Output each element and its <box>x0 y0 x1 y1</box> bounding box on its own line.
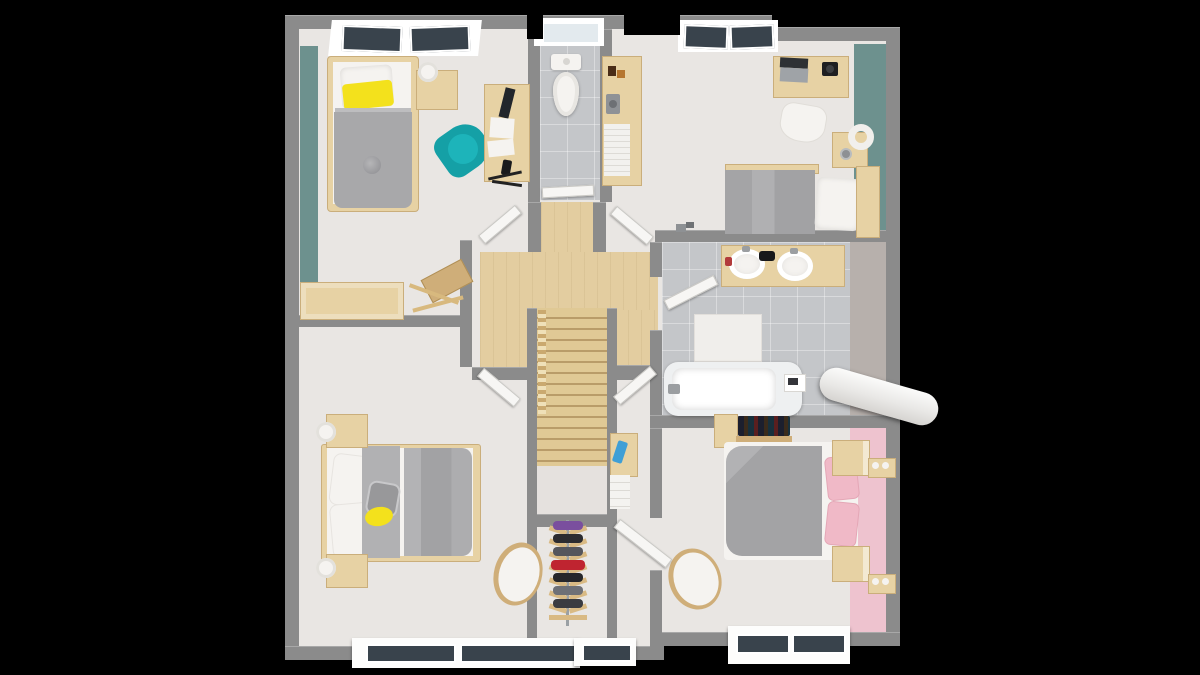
alarm-clock <box>840 148 852 160</box>
bathroom-wall-left-b <box>650 330 662 428</box>
pink-pillow-2 <box>824 500 860 547</box>
bedroom-br-door <box>614 519 673 568</box>
exterior-wall-right <box>886 27 900 646</box>
book-row <box>738 416 790 436</box>
shoes-dark-2 <box>553 599 583 608</box>
bedroom-br-window-1 <box>736 634 790 654</box>
lamp-top <box>316 422 336 442</box>
bed-duvet <box>725 170 815 234</box>
nightstand-top <box>832 440 870 476</box>
faucet-left <box>742 246 750 252</box>
table-lamp <box>418 62 438 82</box>
wc-window <box>542 22 600 44</box>
shoes-gray <box>553 547 583 556</box>
bath-mat <box>694 314 762 362</box>
vestibule-wall-left <box>528 202 541 252</box>
bed-pillow <box>814 177 862 232</box>
stairs-landing <box>537 466 607 514</box>
candle-1 <box>872 462 879 469</box>
white-book-stack <box>604 124 630 176</box>
toilet-flush-button <box>563 58 570 65</box>
bed-duvet <box>404 448 472 556</box>
wc-door <box>542 185 595 199</box>
bathroom-wall-left-a <box>650 242 662 277</box>
floor-gadget-2 <box>686 222 694 228</box>
faucet-right <box>790 248 798 254</box>
sink-right <box>777 251 813 281</box>
stairs-railing <box>538 310 546 414</box>
shoe-rack-base <box>549 615 587 620</box>
bedroom-bl-window-2 <box>460 644 576 663</box>
desk-papers-1 <box>489 117 514 139</box>
black-tray <box>759 251 775 261</box>
teal-armchair-seat <box>448 134 478 164</box>
camera-on-desk-lens <box>826 65 834 73</box>
shoes-dark <box>553 573 583 582</box>
bedroom-bl-window-1 <box>366 644 456 663</box>
candle-2 <box>882 462 889 469</box>
roof-notch-2 <box>624 15 680 35</box>
figurine-orange <box>617 70 625 78</box>
bedroom1-window-1 <box>342 25 403 53</box>
hallway-wood-left <box>480 310 528 368</box>
bathtub-inner <box>672 368 776 410</box>
bathtub-tray-item <box>788 378 798 385</box>
wc-vestibule-wood <box>541 202 593 252</box>
bed-headboard <box>856 166 880 238</box>
lamp-bottom <box>316 558 336 578</box>
desk-papers-2 <box>487 139 515 158</box>
shoes-red <box>551 560 585 570</box>
yellow-pillow <box>342 79 394 110</box>
camera-lens <box>609 100 617 108</box>
vestibule-wall-right <box>593 202 606 252</box>
hallway-wood-floor <box>480 252 658 310</box>
bathroom-door <box>664 275 719 310</box>
bedroom-tr-door <box>610 206 654 245</box>
bedroom1-window-2 <box>410 25 471 53</box>
exterior-wall-left <box>285 15 299 660</box>
storage-chest-upper <box>300 282 404 320</box>
nightstand-bottom <box>832 546 870 582</box>
bathtub-tap <box>668 384 680 394</box>
ring-lamp <box>848 124 874 150</box>
bedroom3-wall-left-a <box>650 428 662 518</box>
floor-gadget <box>676 224 686 232</box>
stairs-treads <box>537 308 607 466</box>
laptop-keyboard <box>780 67 809 82</box>
figurine-dark <box>608 66 616 76</box>
candle-4 <box>882 578 889 585</box>
dressing-window <box>582 644 632 662</box>
gray-ball-cushion <box>363 156 381 174</box>
roof-notch-1 <box>527 15 543 39</box>
bedroom2-window-2 <box>730 24 775 50</box>
soap-red <box>725 257 732 266</box>
bedroom2-window-1 <box>684 24 729 50</box>
shoes-black <box>553 534 583 543</box>
bed-duvet <box>726 446 822 556</box>
candle-3 <box>872 578 879 585</box>
white-boxes <box>610 475 630 509</box>
shoes-gray-2 <box>553 586 583 595</box>
teal-accent-wall-left <box>300 46 318 304</box>
bedroom-br-window-2 <box>792 634 846 654</box>
exterior-wall-top-right <box>770 27 900 41</box>
floorplan-render <box>0 0 1200 675</box>
shoes-purple <box>553 521 583 530</box>
bedroom3-wall-left-b <box>650 570 662 646</box>
bedroom-tl-door <box>478 205 522 244</box>
